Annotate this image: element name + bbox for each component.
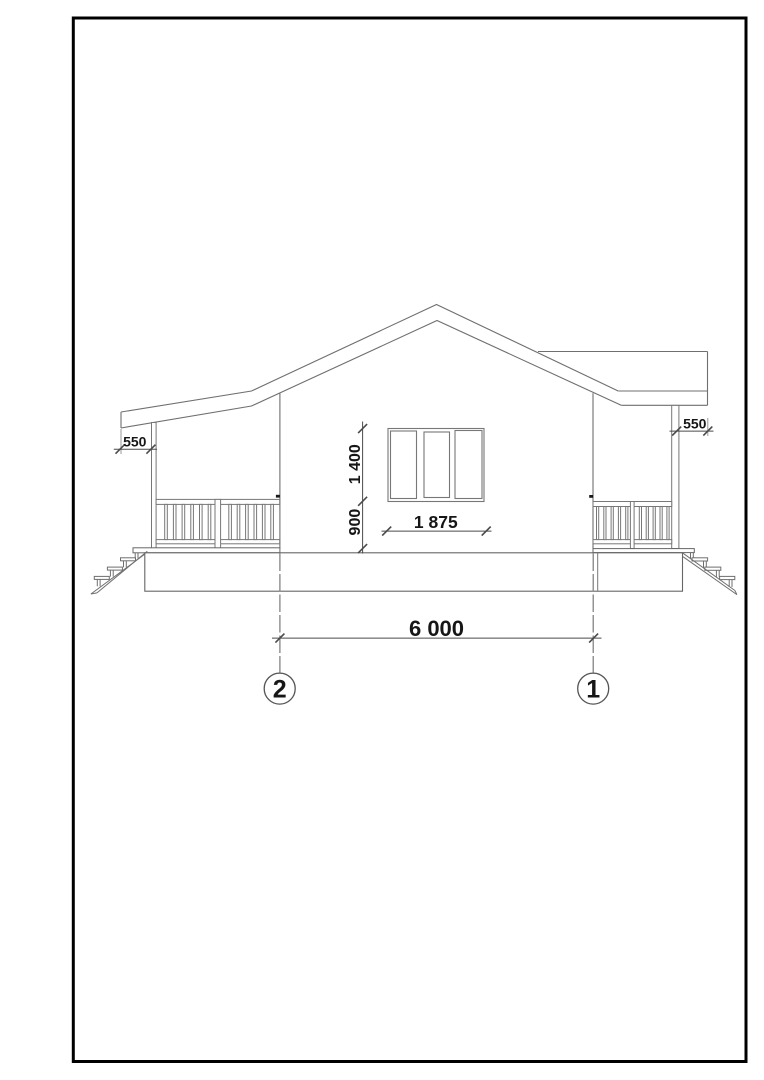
svg-text:6 000: 6 000 (409, 616, 464, 641)
svg-text:550: 550 (683, 415, 707, 431)
svg-text:1 400: 1 400 (347, 444, 364, 484)
svg-text:900: 900 (347, 509, 364, 536)
svg-text:2: 2 (273, 676, 287, 704)
svg-text:550: 550 (123, 434, 147, 450)
svg-text:1: 1 (586, 676, 600, 704)
svg-text:1 875: 1 875 (414, 512, 458, 532)
